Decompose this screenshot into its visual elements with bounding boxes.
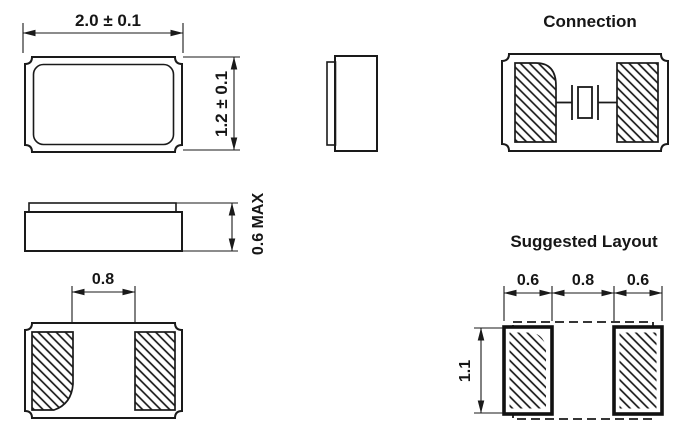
dimension-label: 1.1 [457,360,474,382]
left-pad-hatched [510,333,547,409]
right-pad-hatched [617,63,658,142]
bottom-gap-dimension: 0.8 [72,271,135,322]
crystal-body-rect [578,87,592,118]
side-view [25,203,182,251]
front-view [25,57,182,152]
bottom-view [25,323,182,418]
dimension-label: 1.2 ± 0.1 [212,71,231,137]
connection-title: Connection [543,12,637,31]
dimension-label: 0.8 [92,271,114,288]
right-pad-hatched [620,333,657,409]
left-pad-hatched [32,332,73,410]
dimension-label: 0.8 [572,272,594,289]
package-inner-edge [34,65,174,145]
suggested-layout-view: Suggested Layout 0.6 0.8 0.6 1.1 [457,232,662,419]
body-outline [25,212,182,251]
body-outline [335,56,377,151]
connection-view: Connection [502,12,668,151]
layout-top-dimensions: 0.6 0.8 0.6 [504,272,662,321]
front-height-dimension: 1.2 ± 0.1 [183,57,240,150]
right-pad-hatched [135,332,175,410]
side-height-dimension: 0.6 MAX [176,193,267,256]
lid-outline [29,203,176,212]
end-view [327,56,377,151]
front-width-dimension: 2.0 ± 0.1 [23,11,183,53]
crystal-symbol [556,85,617,120]
dimension-label: 0.6 [627,272,649,289]
dimension-label: 0.6 [517,272,539,289]
layout-height-dimension: 1.1 [457,328,503,413]
left-pad-hatched [515,63,556,142]
technical-drawing-page: 2.0 ± 0.1 1.2 ± 0.1 0.6 MAX 0.8 Connecti… [0,0,697,442]
package-outline [25,57,182,152]
layout-title: Suggested Layout [510,232,658,251]
crystal-package-drawing: 2.0 ± 0.1 1.2 ± 0.1 0.6 MAX 0.8 Connecti… [0,0,697,442]
dimension-label: 2.0 ± 0.1 [75,11,141,30]
dimension-label: 0.6 MAX [250,193,267,256]
